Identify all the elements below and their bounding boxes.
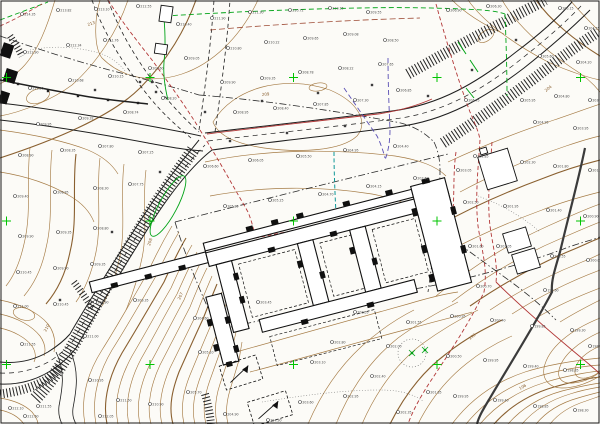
survey-point <box>469 245 472 248</box>
survey-point-label: 209.40 <box>17 194 28 198</box>
survey-point <box>94 301 97 304</box>
survey-point <box>14 305 17 308</box>
survey-point-label: 211.90 <box>214 16 225 20</box>
survey-point <box>211 17 214 20</box>
survey-point <box>199 351 202 354</box>
survey-point <box>331 341 334 344</box>
survey-point <box>344 395 347 398</box>
survey-point-label: 205.70 <box>190 390 201 394</box>
survey-point-label: 207.75 <box>132 182 143 186</box>
survey-point <box>61 149 64 152</box>
survey-point <box>249 159 252 162</box>
small-building <box>159 5 173 23</box>
survey-point <box>574 409 577 412</box>
survey-point-label: 204.70 <box>322 192 333 196</box>
survey-point-label: 203.95 <box>577 126 588 130</box>
survey-point <box>67 44 70 47</box>
survey-point <box>587 259 590 262</box>
survey-point-label: 211.20 <box>32 86 43 90</box>
survey-point <box>149 67 152 70</box>
survey-point-label: 202.50 <box>467 200 478 204</box>
survey-point <box>139 151 142 154</box>
survey-point <box>117 399 120 402</box>
survey-point <box>57 9 60 12</box>
small-building <box>154 43 167 55</box>
survey-point <box>14 195 17 198</box>
survey-point <box>37 123 40 126</box>
survey-point-label: 211.50 <box>120 398 131 402</box>
survey-point <box>329 7 332 10</box>
survey-point-label: 205.10 <box>202 350 213 354</box>
survey-point <box>54 267 57 270</box>
survey-point <box>344 33 347 36</box>
survey-point-label: 207.65 <box>382 62 393 66</box>
survey-point-label: 201.85 <box>430 390 441 394</box>
survey-point-label: 207.30 <box>357 98 368 102</box>
survey-point-label: 201.80 <box>557 164 568 168</box>
survey-point <box>109 75 112 78</box>
survey-point-label: 205.15 <box>562 6 573 10</box>
pole-marker <box>204 111 206 113</box>
survey-point-label: 208.80 <box>97 226 108 230</box>
pole-marker <box>155 91 157 93</box>
survey-point <box>289 9 292 12</box>
survey-point-label: 212.60 <box>27 414 38 418</box>
survey-point-label: 202.95 <box>347 394 358 398</box>
survey-point <box>134 299 137 302</box>
survey-point <box>124 111 127 114</box>
survey-point-label: 211.76 <box>107 38 118 42</box>
survey-point-label: 206.85 <box>400 88 411 92</box>
survey-point <box>297 155 300 158</box>
survey-point <box>265 41 268 44</box>
survey-point <box>534 405 537 408</box>
survey-point <box>29 87 32 90</box>
pole-marker <box>111 231 113 233</box>
survey-point <box>129 183 132 186</box>
survey-point <box>185 57 188 60</box>
survey-point <box>21 13 24 16</box>
survey-point <box>37 405 40 408</box>
pole-marker <box>94 89 96 91</box>
survey-point <box>54 303 57 306</box>
survey-point <box>84 335 87 338</box>
survey-point-label: 200.40 <box>494 318 505 322</box>
survey-point-label: 198.85 <box>537 404 548 408</box>
survey-point <box>162 97 165 100</box>
survey-point-label: 200.90 <box>587 214 598 218</box>
survey-point-label: 209.08 <box>347 32 358 36</box>
topographic-site-plan: 214.35213.82213.10212.55212.90212.34211.… <box>0 0 600 424</box>
survey-point-label: 201.05 <box>500 244 511 248</box>
pole-marker <box>159 171 161 173</box>
survey-point <box>447 9 450 12</box>
survey-point-label: 212.55 <box>140 4 151 8</box>
survey-point-label: 200.70 <box>480 284 491 288</box>
pole-marker <box>344 125 346 127</box>
survey-point-label: 209.90 <box>224 80 235 84</box>
survey-point-label: 213.10 <box>98 7 109 11</box>
survey-point <box>137 5 140 8</box>
survey-point-label: 211.55 <box>24 342 35 346</box>
survey-point <box>524 365 527 368</box>
survey-point-label: 198.85 <box>567 368 578 372</box>
survey-point <box>269 199 272 202</box>
pole-marker <box>286 132 288 134</box>
survey-point <box>24 415 27 418</box>
survey-point-label: 200.55 <box>554 254 565 258</box>
survey-point-label: 202.35 <box>400 410 411 414</box>
survey-point <box>584 215 587 218</box>
survey-point-label: 202.80 <box>334 340 345 344</box>
survey-point <box>234 111 237 114</box>
survey-point-label: 204.90 <box>227 412 238 416</box>
survey-point <box>585 27 588 30</box>
survey-point-label: 199.85 <box>534 324 545 328</box>
survey-point <box>387 345 390 348</box>
survey-point <box>427 391 430 394</box>
survey-point-label: 210.80 <box>230 46 241 50</box>
survey-point-label: 209.35 <box>60 230 71 234</box>
survey-point <box>79 117 82 120</box>
survey-point-label: 211.00 <box>87 334 98 338</box>
survey-point-label: 202.55 <box>357 310 368 314</box>
survey-point <box>554 165 557 168</box>
survey-point-label: 211.55 <box>40 404 51 408</box>
survey-point <box>397 411 400 414</box>
survey-point <box>397 89 400 92</box>
survey-point-label: 209.55 <box>370 10 381 14</box>
survey-point <box>454 395 457 398</box>
pole-marker <box>515 39 517 41</box>
survey-point-label: 210.45 <box>57 302 68 306</box>
survey-point-label: 208.35 <box>64 148 75 152</box>
survey-point-label: 209.32 <box>82 116 93 120</box>
survey-point-label: 208.78 <box>302 70 313 74</box>
survey-point-label: 201.60 <box>472 244 483 248</box>
survey-point <box>564 369 567 372</box>
survey-point-label: 209.05 <box>188 56 199 60</box>
survey-point <box>227 47 230 50</box>
survey-point-label: 199.95 <box>457 394 468 398</box>
survey-point <box>484 359 487 362</box>
survey-point-label: 209.35 <box>94 262 105 266</box>
survey-point <box>574 127 577 130</box>
survey-point-label: 209.90 <box>97 300 108 304</box>
survey-point <box>589 169 592 172</box>
pole-marker <box>139 81 141 83</box>
survey-point <box>547 209 550 212</box>
survey-point-label: 209.65 <box>307 36 318 40</box>
wall-tick <box>47 90 49 92</box>
survey-point <box>344 149 347 152</box>
survey-point-label: 208.50 <box>387 38 398 42</box>
survey-map-canvas: 214.35213.82213.10212.55212.90212.34211.… <box>0 0 600 424</box>
survey-point-label: 204.60 <box>197 316 208 320</box>
survey-point-label: 199.60 <box>547 288 558 292</box>
survey-point-label: 210.45 <box>20 270 31 274</box>
survey-point-label: 199.95 <box>487 358 498 362</box>
survey-point <box>491 319 494 322</box>
survey-point <box>21 343 24 346</box>
survey-point-label: 205.95 <box>524 98 535 102</box>
survey-point <box>367 185 370 188</box>
survey-point-label: 204.20 <box>580 60 591 64</box>
survey-point-label: 209.90 <box>57 266 68 270</box>
survey-point-label: 204.80 <box>558 94 569 98</box>
survey-point <box>394 145 397 148</box>
survey-point <box>504 205 507 208</box>
survey-point-label: 204.30 <box>270 418 281 422</box>
survey-point <box>457 169 460 172</box>
survey-point-label: 203.10 <box>314 360 325 364</box>
survey-point <box>187 391 190 394</box>
wall-tick <box>77 95 79 97</box>
survey-point-label: 208.85 <box>57 190 68 194</box>
survey-point <box>19 154 22 157</box>
pole-marker <box>151 81 153 83</box>
survey-point <box>91 263 94 266</box>
survey-point-label: 212.90 <box>27 50 38 54</box>
survey-point-label: 201.95 <box>507 204 518 208</box>
survey-point <box>257 301 260 304</box>
survey-point-label: 205.60 <box>542 54 553 58</box>
survey-point <box>464 201 467 204</box>
survey-point-label: 200.50 <box>450 354 461 358</box>
survey-point <box>274 107 277 110</box>
survey-point-label: 206.30 <box>490 4 501 8</box>
pole-marker <box>471 69 473 71</box>
survey-point <box>311 361 314 364</box>
survey-point-label: 206.05 <box>252 158 263 162</box>
survey-point <box>177 23 180 26</box>
survey-point-label: 205.25 <box>272 198 283 202</box>
survey-point <box>24 51 27 54</box>
survey-point <box>354 311 357 314</box>
survey-point <box>149 403 152 406</box>
contour-label: 209 <box>262 91 271 97</box>
map-background <box>0 0 600 424</box>
survey-point-label: 209.35 <box>137 298 148 302</box>
survey-point <box>531 325 534 328</box>
survey-point-label: 203.45 <box>260 300 271 304</box>
survey-point-label: 207.25 <box>142 150 153 154</box>
survey-point <box>89 379 92 382</box>
survey-point-label: 208.90 <box>22 153 33 157</box>
survey-point-label: 212.05 <box>102 414 113 418</box>
wall-tick <box>137 102 139 104</box>
survey-point <box>367 11 370 14</box>
survey-point <box>589 345 592 348</box>
survey-point <box>474 155 477 158</box>
survey-point-label: 198.30 <box>577 408 588 412</box>
survey-point <box>589 99 592 102</box>
survey-point-label: 199.30 <box>574 328 585 332</box>
survey-point-label: 209.60 <box>152 66 163 70</box>
survey-point <box>69 79 72 82</box>
pole-marker <box>317 92 319 94</box>
survey-point <box>99 415 102 418</box>
survey-point-label: 208.22 <box>342 66 353 70</box>
survey-point <box>407 321 410 324</box>
survey-point <box>261 77 264 80</box>
survey-point <box>224 205 227 208</box>
survey-point-label: 211.00 <box>17 304 28 308</box>
survey-point <box>57 231 60 234</box>
survey-point-label: 206.60 <box>207 164 218 168</box>
survey-point-label: 204.55 <box>588 26 599 30</box>
survey-point-label: 210.40 <box>180 22 191 26</box>
survey-point-label: 203.60 <box>302 400 313 404</box>
survey-point-label: 209.95 <box>40 122 51 126</box>
survey-point <box>487 5 490 8</box>
survey-point <box>544 289 547 292</box>
survey-point <box>9 407 12 410</box>
survey-point-label: 205.50 <box>300 154 311 158</box>
survey-point <box>99 145 102 148</box>
survey-point <box>104 39 107 42</box>
survey-point-label: 210.22 <box>268 40 279 44</box>
survey-point <box>477 285 480 288</box>
survey-point-label: 210.95 <box>92 378 103 382</box>
survey-point-label: 202.30 <box>524 160 535 164</box>
pole-marker <box>261 100 263 102</box>
survey-point <box>299 71 302 74</box>
survey-point <box>267 419 270 422</box>
pole-marker <box>229 140 231 142</box>
survey-point <box>194 317 197 320</box>
survey-point-label: 199.40 <box>527 364 538 368</box>
survey-point <box>577 61 580 64</box>
survey-point <box>539 55 542 58</box>
survey-point <box>314 103 317 106</box>
survey-point <box>465 99 468 102</box>
survey-point-label: 202.00 <box>390 344 401 348</box>
survey-point <box>447 355 450 358</box>
survey-point-label: 201.55 <box>410 320 421 324</box>
survey-point-label: 204.40 <box>397 144 408 148</box>
survey-point-label: 202.40 <box>374 374 385 378</box>
pole-marker <box>59 299 61 301</box>
survey-point <box>551 255 554 258</box>
survey-point <box>451 315 454 318</box>
survey-point <box>354 99 357 102</box>
survey-point-label: 210.68 <box>72 78 83 82</box>
survey-point <box>534 121 537 124</box>
survey-point <box>571 329 574 332</box>
survey-point <box>299 401 302 404</box>
survey-point-label: 209.90 <box>22 234 33 238</box>
survey-point <box>414 177 417 180</box>
wall-tick <box>107 99 109 101</box>
survey-point <box>54 191 57 194</box>
survey-point-label: 208.74 <box>127 110 138 114</box>
survey-point <box>221 81 224 84</box>
survey-point <box>304 37 307 40</box>
survey-point-label: 200.95 <box>454 314 465 318</box>
survey-point-label: 208.20 <box>165 96 176 100</box>
pole-marker <box>427 95 429 97</box>
survey-point-label: 208.95 <box>237 110 248 114</box>
survey-point-label: 214.35 <box>24 12 35 16</box>
survey-point-label: 204.95 <box>347 148 358 152</box>
survey-point <box>555 95 558 98</box>
survey-point-label: 210.90 <box>152 402 163 406</box>
survey-point-label: 204.95 <box>537 120 548 124</box>
survey-point-label: 206.45 <box>468 98 479 102</box>
survey-point <box>379 63 382 66</box>
survey-point-label: 213.82 <box>60 8 71 12</box>
survey-point <box>371 375 374 378</box>
pole-marker <box>371 84 373 86</box>
survey-point-label: 203.60 <box>417 176 428 180</box>
survey-point <box>559 7 562 10</box>
survey-point <box>339 67 342 70</box>
wall-tick <box>17 83 19 85</box>
survey-point-label: 199.40 <box>497 398 508 402</box>
survey-point-label: 207.85 <box>317 102 328 106</box>
survey-point <box>204 165 207 168</box>
survey-point <box>19 235 22 238</box>
survey-point-label: 209.35 <box>264 76 275 80</box>
survey-point <box>17 271 20 274</box>
survey-point-label: 212.34 <box>70 43 81 47</box>
survey-point-label: 211.30 <box>252 10 263 14</box>
survey-point-label: 205.80 <box>227 204 238 208</box>
survey-point <box>249 11 252 14</box>
survey-point <box>384 39 387 42</box>
survey-point <box>497 245 500 248</box>
survey-point <box>224 413 227 416</box>
survey-point <box>94 227 97 230</box>
survey-point-label: 202.85 <box>477 154 488 158</box>
survey-point-label: 212.10 <box>12 406 23 410</box>
survey-point-label: 201.40 <box>550 208 561 212</box>
survey-point-label: 206.90 <box>450 8 461 12</box>
survey-point <box>319 193 322 196</box>
survey-point <box>94 187 97 190</box>
survey-point-label: 210.15 <box>112 74 123 78</box>
survey-point <box>494 399 497 402</box>
survey-point <box>521 161 524 164</box>
survey-point-label: 203.05 <box>460 168 471 172</box>
survey-point <box>95 8 98 11</box>
survey-point-label: 210.72 <box>292 8 303 12</box>
survey-point-label: 208.30 <box>97 186 108 190</box>
survey-point-label: 208.40 <box>277 106 288 110</box>
survey-point-label: 207.80 <box>102 144 113 148</box>
survey-point-label: 204.15 <box>370 184 381 188</box>
survey-point <box>521 99 524 102</box>
survey-point-label: 210.15 <box>332 6 343 10</box>
